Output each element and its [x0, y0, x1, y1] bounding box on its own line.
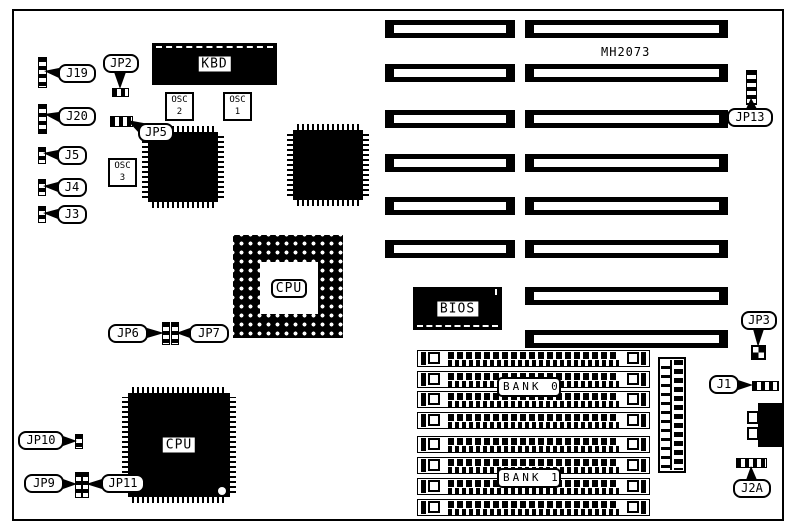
jp13-label: JP13: [727, 108, 773, 127]
leader-lines: [0, 0, 791, 527]
j20-label: J20: [58, 107, 96, 126]
bank1-label: BANK 1: [497, 468, 561, 488]
bank0-label: BANK 0: [497, 377, 561, 397]
jp5-label: JP5: [138, 123, 174, 142]
jp6-label: JP6: [108, 324, 148, 343]
j2a-label: J2A: [733, 479, 771, 498]
jp2-label: JP2: [103, 54, 139, 73]
j5-label: J5: [57, 146, 87, 165]
j1-label: J1: [709, 375, 739, 394]
jp7-label: JP7: [189, 324, 229, 343]
j19-label: J19: [58, 64, 96, 83]
jp3-label: JP3: [741, 311, 777, 330]
j3-label: J3: [57, 205, 87, 224]
j4-label: J4: [57, 178, 87, 197]
jp10-label: JP10: [18, 431, 64, 450]
motherboard-diagram: MH2073 KBD BIOS OSC 2 OSC 1 OSC 3: [0, 0, 791, 527]
jp9-label: JP9: [24, 474, 64, 493]
jp11-label: JP11: [101, 474, 145, 493]
